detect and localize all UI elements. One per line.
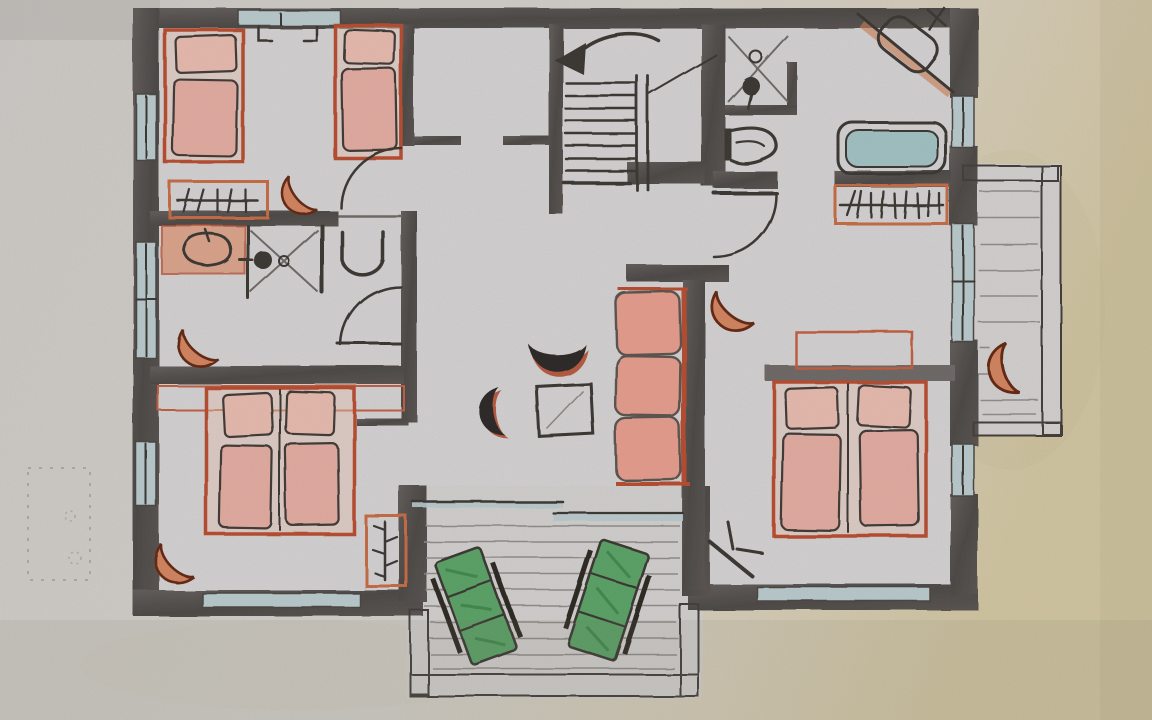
floor-plan-photo <box>0 0 1152 720</box>
photo-lighting <box>0 0 1152 720</box>
